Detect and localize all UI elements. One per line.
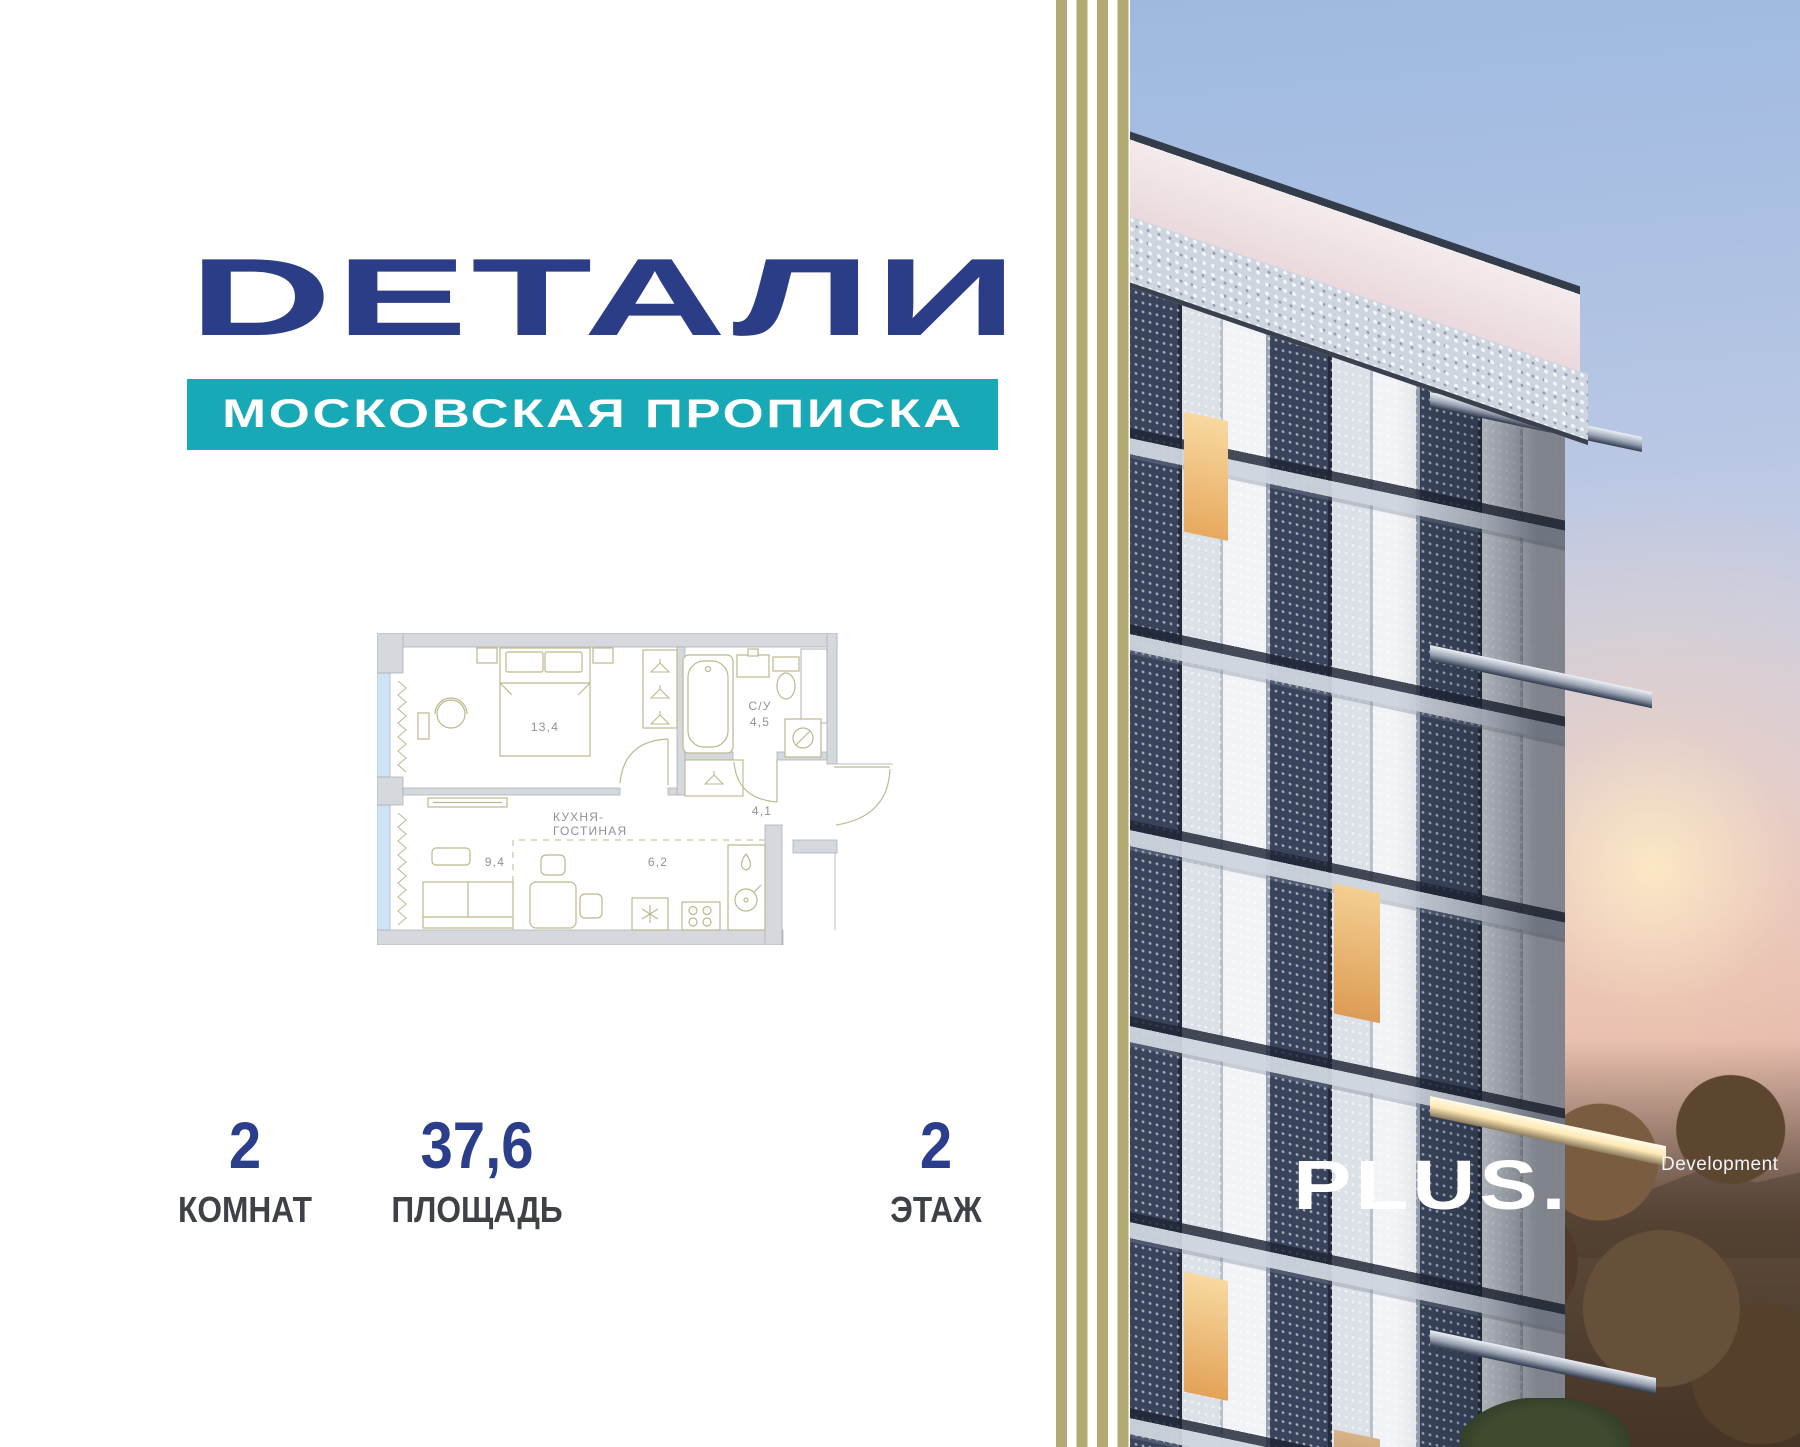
bathroom-name-label: С/У	[748, 699, 771, 713]
kitchen-title-line2: ГОСТИНАЯ	[553, 824, 627, 838]
bush	[1460, 1398, 1630, 1447]
stat-value: 37,6	[371, 1112, 582, 1178]
living-area-label: 9,4	[485, 855, 505, 869]
stat-label: ЭТАЖ	[830, 1189, 1041, 1231]
armchair	[437, 700, 465, 728]
dining-chair	[541, 855, 565, 875]
floor-plan: 13,4 С/У 4,5 4,1 КУХНЯ- ГОСТИНАЯ 9,4 6,2	[377, 633, 893, 945]
bath-sink	[737, 655, 769, 677]
dining-table	[530, 882, 576, 928]
stat-value: 2	[830, 1112, 1041, 1178]
developer-logo-suffix: Development	[1661, 1154, 1778, 1176]
kitchen-area-label: 6,2	[648, 855, 668, 869]
stove	[682, 902, 720, 930]
stat-area: 37,6 ПЛОЩАДЬ	[357, 1112, 597, 1231]
accent-stripes	[1056, 0, 1129, 1447]
facade-shadow	[1130, 278, 1565, 1447]
coffee-table	[432, 848, 470, 865]
developer-logo: PLUS. Development	[1293, 1150, 1514, 1220]
building-facade	[1130, 0, 1800, 1447]
brand-tagline: МОСКОВСКАЯ ПРОПИСКА	[222, 392, 964, 437]
bedroom-area-label: 13,4	[531, 720, 559, 734]
stat-value: 2	[139, 1112, 350, 1178]
bathroom-area-label: 4,5	[750, 715, 770, 729]
toilet	[773, 657, 799, 671]
kitchen-counter	[728, 845, 765, 930]
plan-shaft	[801, 649, 827, 723]
brand-tagline-band: МОСКОВСКАЯ ПРОПИСКА	[187, 379, 998, 450]
plan-exterior-lines	[835, 764, 893, 930]
brand-logo: DЕТАЛИ	[189, 243, 1021, 353]
desk	[418, 713, 429, 739]
stat-label: КОМНАТ	[139, 1189, 350, 1231]
ad-banner: DЕТАЛИ МОСКОВСКАЯ ПРОПИСКА	[0, 0, 1800, 1447]
stat-label: ПЛОЩАДЬ	[371, 1189, 582, 1231]
kitchen-title-line1: КУХНЯ-	[553, 810, 604, 824]
bedroom-furniture	[418, 648, 677, 756]
stat-floor: 2 ЭТАЖ	[816, 1112, 1056, 1231]
facade-grid	[1130, 278, 1565, 1447]
building-photo: PLUS. Development	[1130, 0, 1800, 1447]
developer-logo-text: PLUS.	[1293, 1150, 1569, 1220]
hallway-area-label: 4,1	[752, 804, 772, 818]
dining-chair	[580, 894, 602, 918]
stat-rooms: 2 КОМНАТ	[125, 1112, 365, 1231]
